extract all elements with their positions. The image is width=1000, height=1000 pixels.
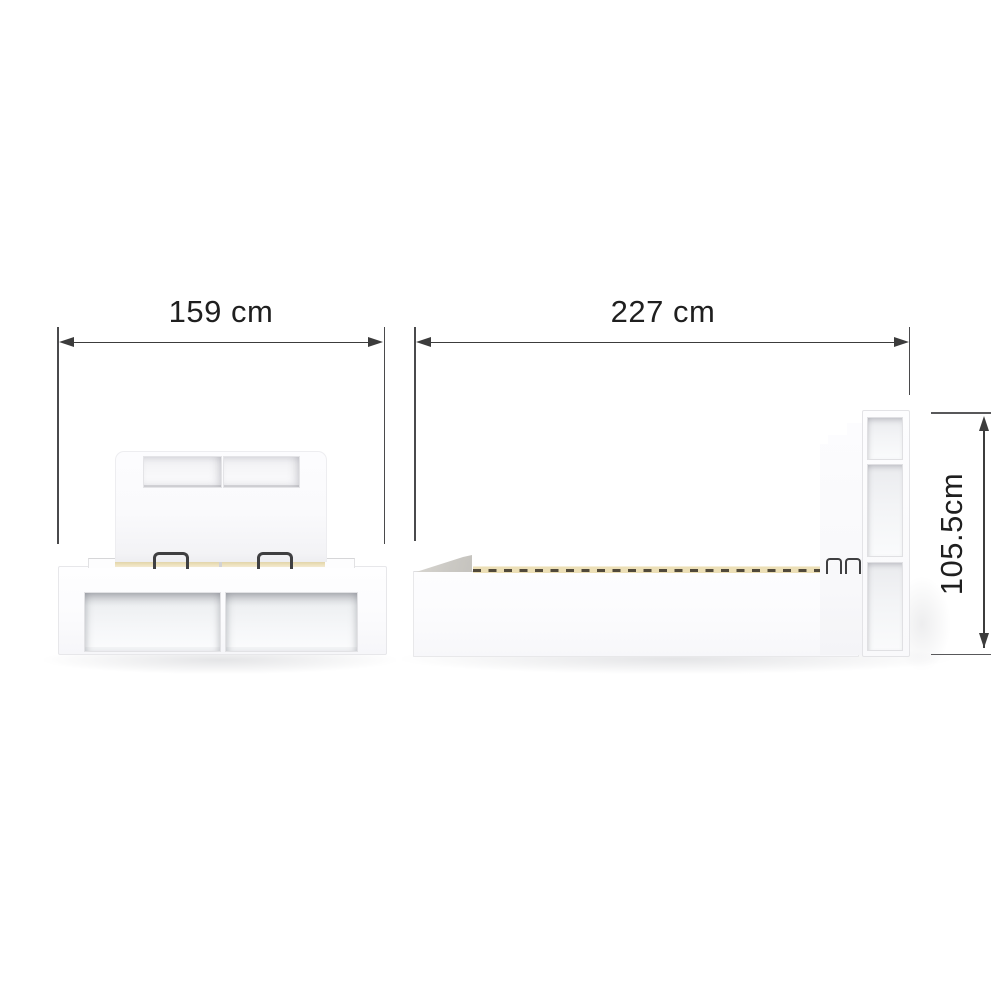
- slat-gaps: [473, 569, 822, 572]
- side-length-label: 227 cm: [538, 294, 788, 330]
- arrowhead-left-icon: [59, 337, 74, 347]
- diagram-canvas: 159 cm 227 cm 105.5cm: [0, 0, 1000, 1000]
- storage-base: [413, 571, 859, 657]
- arrowhead-right-icon: [368, 337, 383, 347]
- arrowhead-right-icon: [894, 337, 909, 347]
- lift-handle-left: [826, 558, 842, 574]
- front-width-label: 159 cm: [96, 294, 346, 330]
- shelf-cell-middle: [867, 464, 903, 557]
- headboard-shelf-column: [862, 410, 910, 657]
- arrowhead-up-icon: [979, 416, 989, 431]
- dimension-line: [68, 342, 374, 344]
- footboard-panel: [416, 555, 472, 572]
- tick-top: [931, 412, 991, 414]
- lift-handle-left: [153, 552, 189, 569]
- headboard-side-panel: [820, 423, 866, 655]
- dimension-line: [983, 420, 985, 648]
- headboard: [115, 451, 327, 562]
- shelf-cell-top: [867, 417, 903, 460]
- arrowhead-down-icon: [979, 633, 989, 648]
- headboard-niche-left: [143, 456, 222, 488]
- extension-line-right: [384, 327, 386, 544]
- slat-deck: [473, 566, 822, 573]
- dimension-line: [425, 342, 900, 344]
- base-compartment-left: [84, 592, 221, 652]
- shelf-cell-bottom: [867, 562, 903, 651]
- headboard-niche-right: [223, 456, 300, 488]
- base-compartment-right: [225, 592, 358, 652]
- arrowhead-left-icon: [416, 337, 431, 347]
- extension-line-left: [57, 327, 59, 544]
- lift-handle-right: [845, 558, 861, 574]
- lift-handle-right: [257, 552, 293, 569]
- extension-line-left: [414, 327, 416, 541]
